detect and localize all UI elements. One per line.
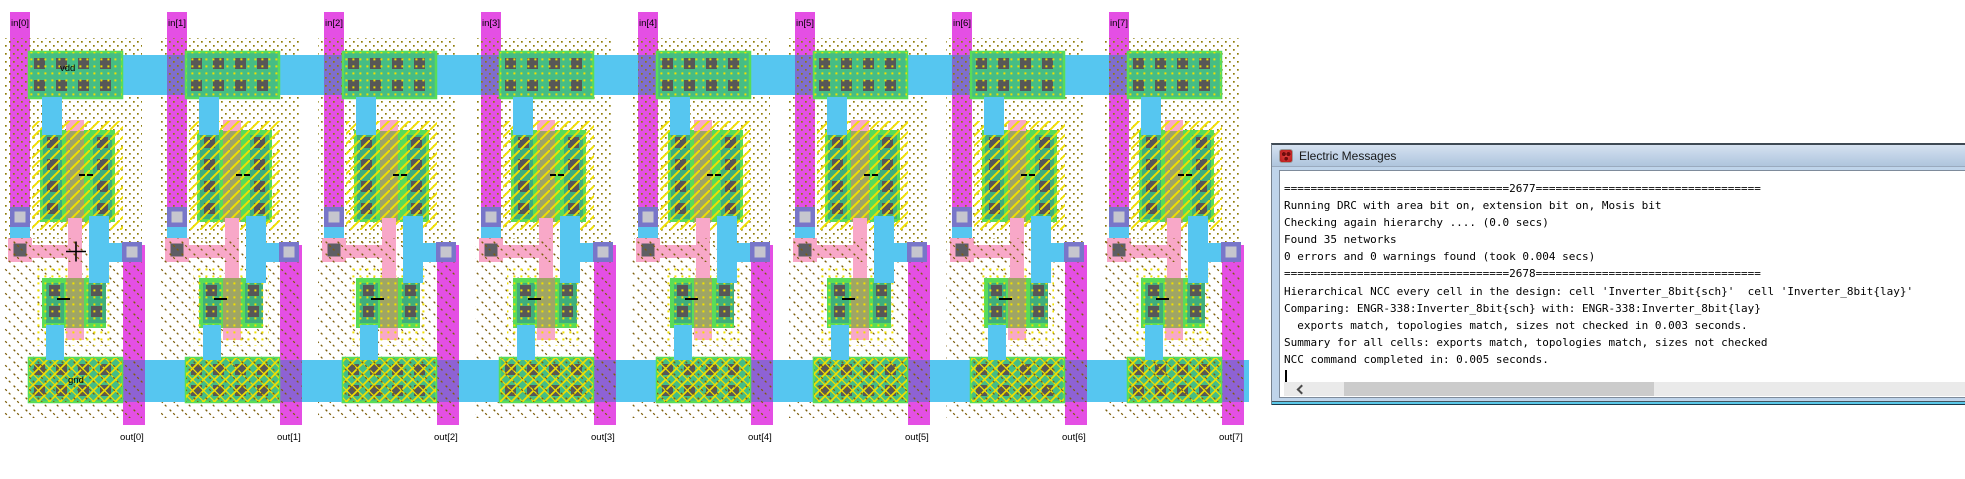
console-line: Hierarchical NCC every cell in the desig… bbox=[1284, 283, 1965, 300]
messages-titlebar[interactable]: Electric Messages bbox=[1272, 145, 1965, 167]
horizontal-scrollbar[interactable] bbox=[1284, 382, 1965, 396]
electric-application: in[0]out[0]vddgndin[1]out[1]in[2]out[2]i… bbox=[0, 0, 1965, 479]
vdd-label: vdd bbox=[60, 63, 75, 74]
console-line: NCC command completed in: 0.005 seconds. bbox=[1284, 351, 1965, 368]
input-pin-label: in[6] bbox=[953, 18, 971, 29]
console-text: ==================================2677==… bbox=[1284, 180, 1965, 368]
messages-window-title: Electric Messages bbox=[1299, 149, 1396, 163]
input-pin-label: in[7] bbox=[1110, 18, 1128, 29]
output-pin-label: out[3] bbox=[591, 432, 615, 443]
input-pin-label: in[0] bbox=[11, 18, 29, 29]
output-pin-label: out[4] bbox=[748, 432, 772, 443]
input-pin-label: in[2] bbox=[325, 18, 343, 29]
window-bottom-edge bbox=[1272, 401, 1965, 405]
output-pin-label: out[0] bbox=[120, 432, 144, 443]
output-pin-label: out[5] bbox=[905, 432, 929, 443]
input-pin-label: in[1] bbox=[168, 18, 186, 29]
console-line: Found 35 networks bbox=[1284, 231, 1965, 248]
input-pin-label: in[4] bbox=[639, 18, 657, 29]
output-pin-label: out[2] bbox=[434, 432, 458, 443]
console-line: 0 errors and 0 warnings found (took 0.00… bbox=[1284, 248, 1965, 265]
scroll-left-button[interactable] bbox=[1284, 382, 1317, 396]
scrollbar-thumb[interactable] bbox=[1344, 382, 1654, 396]
console-line: exports match, topologies match, sizes n… bbox=[1284, 317, 1965, 334]
console-line: Comparing: ENGR-338:Inverter_8bit{sch} w… bbox=[1284, 300, 1965, 317]
output-pin-label: out[1] bbox=[277, 432, 301, 443]
console-line: Checking again hierarchy .... (0.0 secs) bbox=[1284, 214, 1965, 231]
output-pin-label: out[6] bbox=[1062, 432, 1086, 443]
electric-logo-icon bbox=[1279, 149, 1293, 163]
console-line: Summary for all cells: exports match, to… bbox=[1284, 334, 1965, 351]
messages-window: Electric Messages ======================… bbox=[1271, 143, 1965, 405]
console-line: ==================================2678==… bbox=[1284, 265, 1965, 282]
output-pin-label: out[7] bbox=[1219, 432, 1243, 443]
input-pin-label: in[3] bbox=[482, 18, 500, 29]
gnd-label: gnd bbox=[68, 375, 84, 386]
scroll-left-arrow-icon bbox=[1297, 384, 1307, 394]
messages-console[interactable]: ==================================2677==… bbox=[1279, 170, 1965, 398]
console-line: ==================================2677==… bbox=[1284, 180, 1965, 197]
console-line: Running DRC with area bit on, extension … bbox=[1284, 197, 1965, 214]
input-pin-label: in[5] bbox=[796, 18, 814, 29]
layout-canvas[interactable]: in[0]out[0]vddgndin[1]out[1]in[2]out[2]i… bbox=[0, 0, 1250, 455]
